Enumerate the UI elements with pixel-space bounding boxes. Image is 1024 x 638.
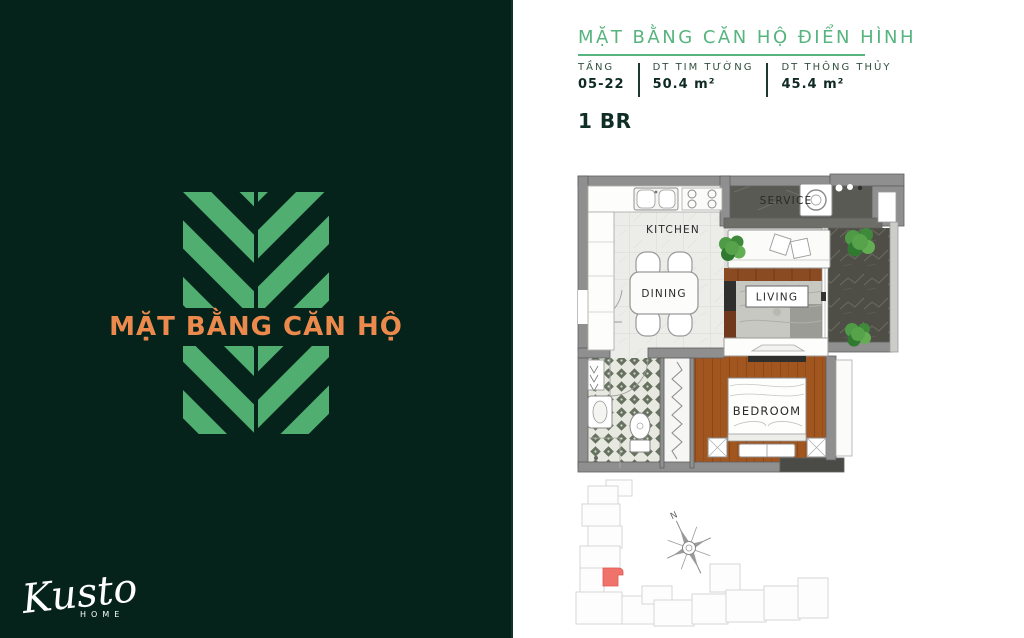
spec-net-area-label: DT THÔNG THỦY xyxy=(781,62,891,73)
ac-ledge xyxy=(878,192,896,222)
brochure-page: MẶT BẰNG CĂN HỘ Kusto HOME MẶT BẰNG CĂN … xyxy=(0,0,1024,638)
compass-north-label: N xyxy=(669,510,679,522)
floorplan-image: KITCHEN SERVICE DINING LIVING BEDROOM xyxy=(576,172,908,482)
unit-type-label: 1 BR xyxy=(578,109,632,133)
spec-gross-area: DT TIM TƯỜNG 50.4 m² xyxy=(653,62,754,97)
spec-row: TẦNG 05-22 DT TIM TƯỜNG 50.4 m² DT THÔNG… xyxy=(578,62,891,97)
dining-label: DINING xyxy=(641,288,686,300)
panel-divider xyxy=(511,0,513,638)
page-title: MẶT BẰNG CĂN HỘ ĐIỂN HÌNH xyxy=(578,27,938,48)
title-underline xyxy=(578,54,865,56)
wardrobe xyxy=(664,358,690,468)
spec-floor: TẦNG 05-22 xyxy=(578,62,625,97)
spec-divider xyxy=(766,63,768,97)
spec-divider xyxy=(638,63,640,97)
spec-floor-label: TẦNG xyxy=(578,62,625,73)
spec-net-area: DT THÔNG THỦY 45.4 m² xyxy=(781,62,891,97)
kitchen-label: KITCHEN xyxy=(646,224,700,236)
service-label: SERVICE xyxy=(760,195,813,207)
left-panel-title: MẶT BẰNG CĂN HỘ xyxy=(0,311,512,343)
living-label: LIVING xyxy=(756,292,798,304)
left-panel: MẶT BẰNG CĂN HỘ Kusto HOME xyxy=(0,0,512,638)
side-ledge xyxy=(836,360,852,456)
highlighted-unit xyxy=(603,568,623,586)
keyplan-image: N xyxy=(572,478,862,636)
spec-floor-value: 05-22 xyxy=(578,77,625,92)
kusto-home-logo: Kusto HOME xyxy=(22,572,222,619)
spec-net-area-value: 45.4 m² xyxy=(781,77,891,92)
spec-gross-area-value: 50.4 m² xyxy=(653,77,754,92)
spec-gross-area-label: DT TIM TƯỜNG xyxy=(653,62,754,73)
bedroom-label: BEDROOM xyxy=(733,404,801,418)
